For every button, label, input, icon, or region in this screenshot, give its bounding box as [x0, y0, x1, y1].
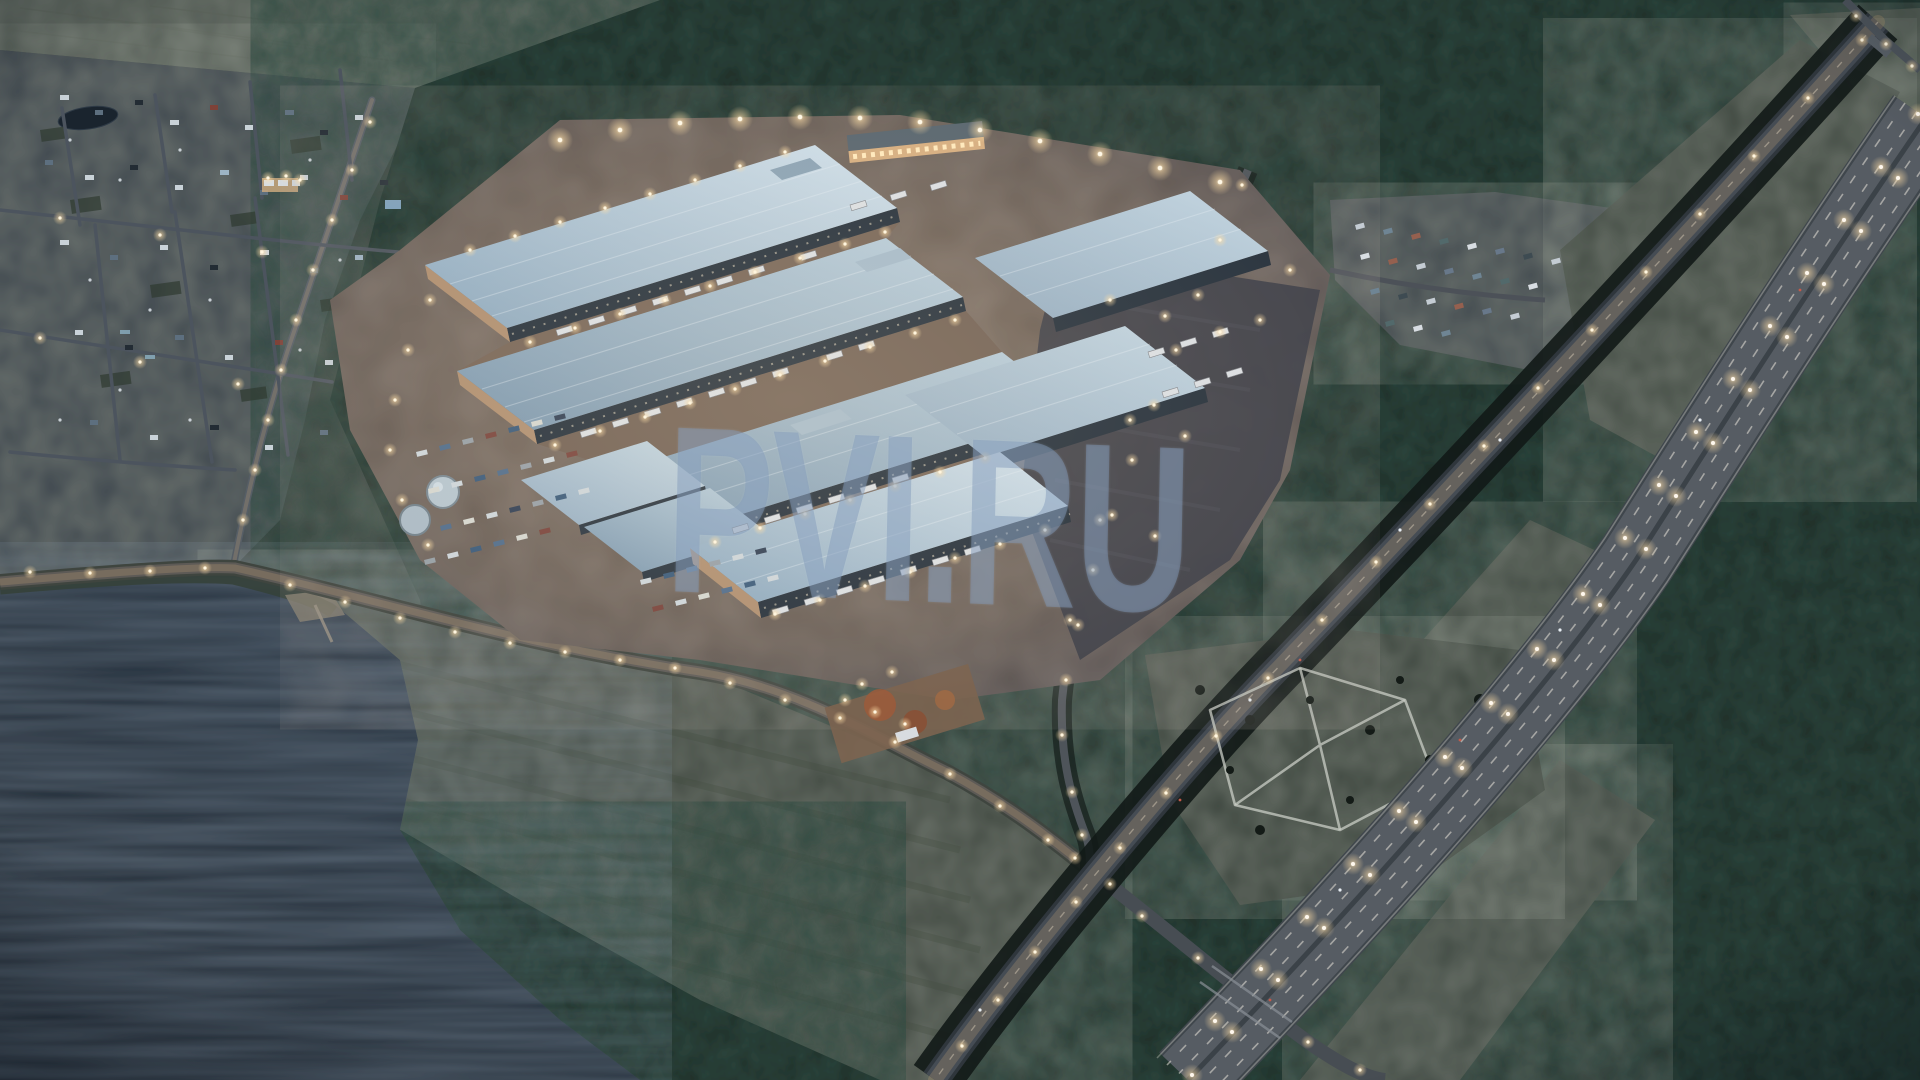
watermark: PVI.RU	[663, 404, 1191, 665]
aerial-dusk-render: PVI.RU	[0, 0, 1920, 1080]
